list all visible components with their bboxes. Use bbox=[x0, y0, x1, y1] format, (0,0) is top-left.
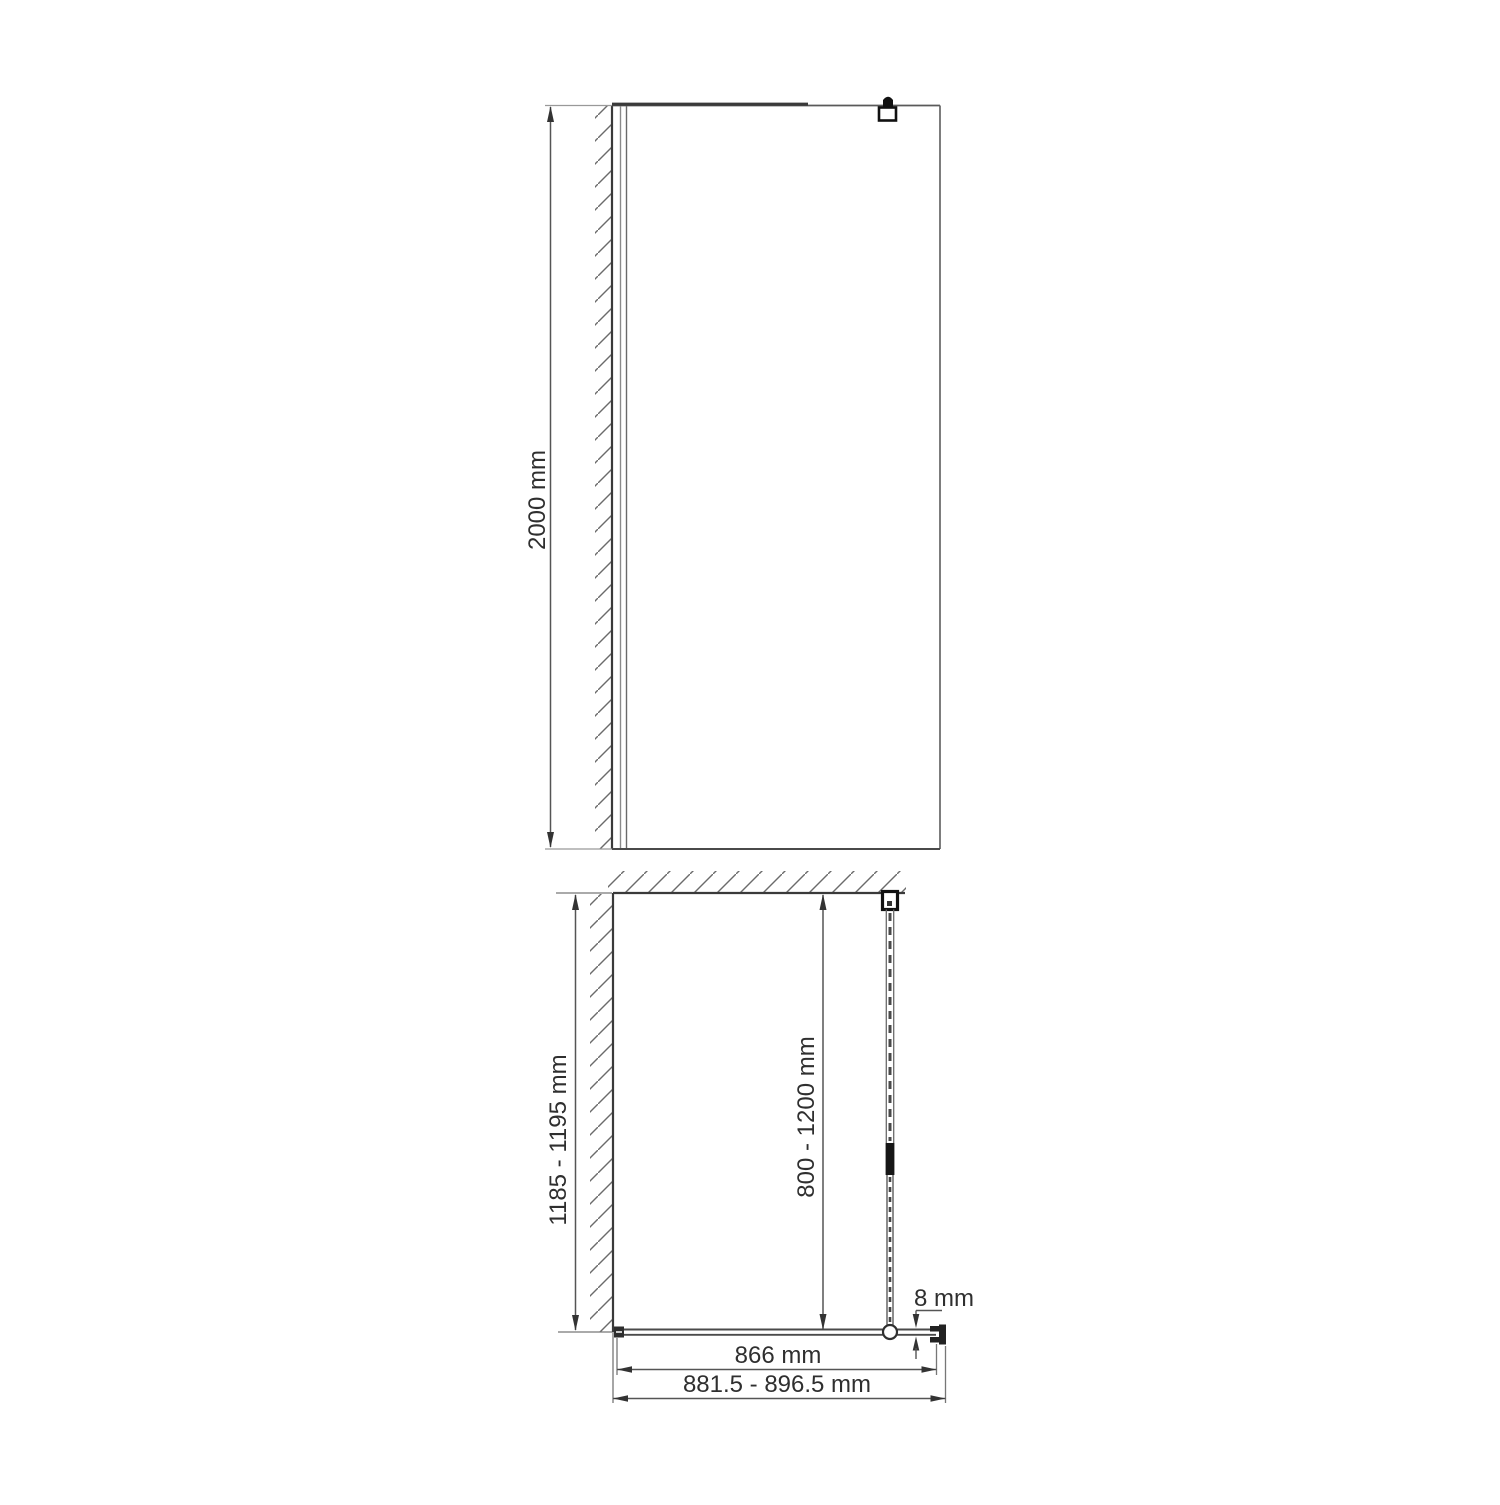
glass-clamp-icon bbox=[879, 97, 896, 121]
glass-width-label: 866 mm bbox=[735, 1342, 822, 1369]
wall-profile-plan-icon bbox=[614, 1327, 624, 1338]
wall-hatch-plan-left bbox=[590, 894, 613, 1332]
front-height-label: 2000 mm bbox=[524, 450, 551, 550]
wall-profile-front bbox=[621, 106, 627, 848]
support-bar-length-label: 800 - 1200 mm bbox=[793, 1036, 820, 1197]
support-bar-dimension: 800 - 1200 mm bbox=[793, 894, 827, 1330]
wall-hatch-plan-top bbox=[608, 871, 906, 892]
front-view: 2000 mm bbox=[524, 97, 940, 849]
plan-view: 1185 - 1195 mm 800 - 1200 mm 8 mm bbox=[545, 871, 974, 1403]
wall-bracket-icon bbox=[883, 892, 898, 910]
wall-hatch-front bbox=[595, 106, 612, 849]
bar-adjuster-segment bbox=[886, 1143, 895, 1175]
glass-width-dimension: 866 mm bbox=[617, 1338, 937, 1375]
glass-connector-icon bbox=[883, 1325, 897, 1339]
glass-thickness-label: 8 mm bbox=[914, 1285, 974, 1312]
glass-thickness-dimension: 8 mm bbox=[913, 1285, 974, 1359]
shower-screen-diagram: 2000 mm bbox=[0, 0, 1500, 1500]
height-dimension: 2000 mm bbox=[524, 106, 554, 848]
plan-depth-label: 1185 - 1195 mm bbox=[545, 1054, 572, 1225]
support-bar-plan bbox=[883, 892, 898, 1340]
technical-drawing-page: 2000 mm bbox=[0, 0, 1500, 1500]
overall-width-label: 881.5 - 896.5 mm bbox=[683, 1371, 871, 1398]
